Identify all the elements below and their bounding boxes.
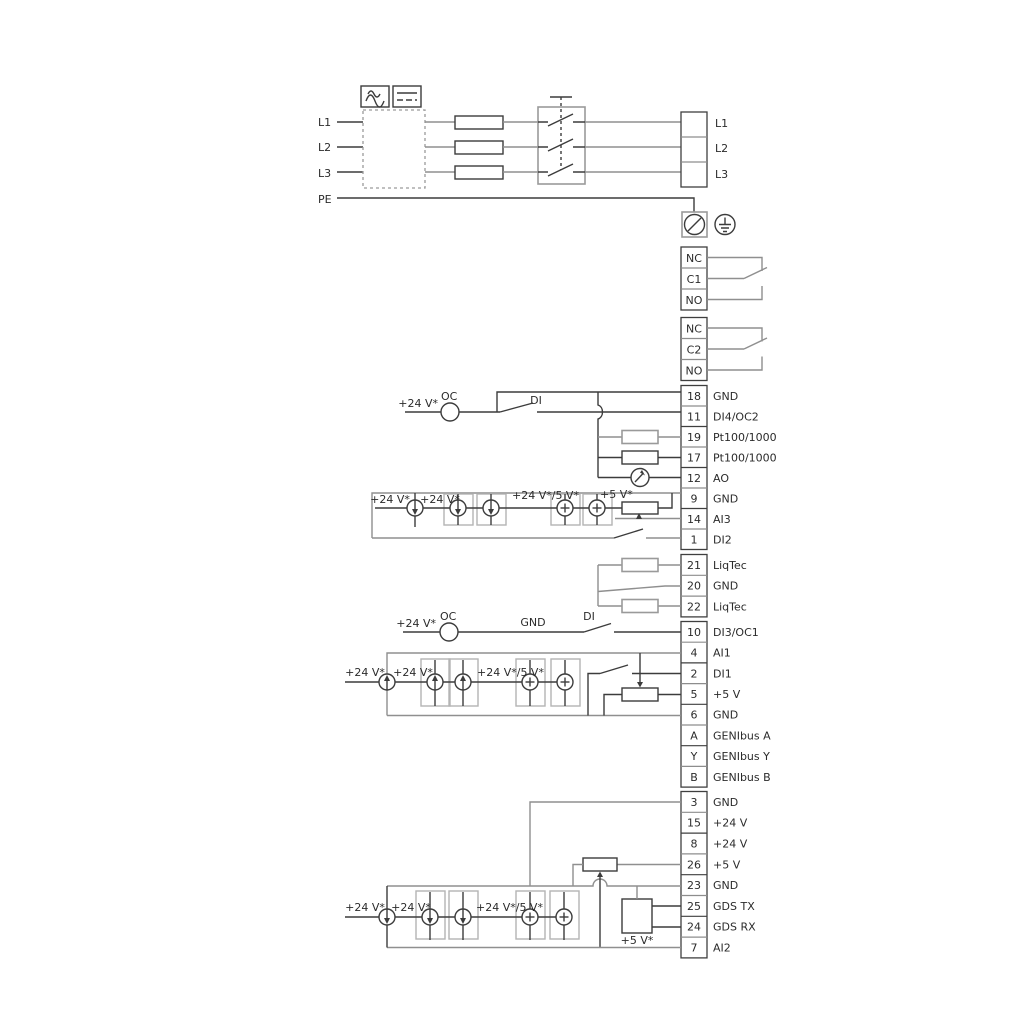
terminal-label: GND <box>713 580 738 593</box>
phase-out-label: L1 <box>715 117 728 130</box>
terminal-number: 1 <box>691 534 698 547</box>
terminal-number: 11 <box>687 411 701 424</box>
terminal-label: AO <box>713 472 729 485</box>
dc-symbol-icon <box>393 86 421 107</box>
plus24v-label: +24 V* <box>393 666 433 679</box>
terminal-number: 18 <box>687 390 701 403</box>
pt100-resistor-icon <box>622 431 658 444</box>
mains-terminal-block <box>681 112 707 187</box>
terminal-label: LiqTec <box>713 601 747 614</box>
terminal-label: GND <box>713 796 738 809</box>
terminal-number: 5 <box>691 688 698 701</box>
terminal-label: DI1 <box>713 667 732 680</box>
relay-terminal: NC <box>686 252 702 265</box>
phase-out-label: L3 <box>715 168 728 181</box>
liqtec-sensor-circuit <box>598 559 681 613</box>
di-switch-icon <box>500 403 533 412</box>
terminal-number: 12 <box>687 472 701 485</box>
terminal-label: Pt100/1000 <box>713 431 777 444</box>
di3-oc1-circuit: +24 V* OC GND DI <box>396 610 681 641</box>
main-switch <box>538 97 585 184</box>
plus5v-label: +5 V* <box>600 488 633 501</box>
liqtec-resistor-icon <box>622 559 658 572</box>
terminal-label: +24 V <box>713 838 748 851</box>
terminal-number: 25 <box>687 900 701 913</box>
plus24v-label: +24 V* <box>396 617 436 630</box>
di2-switch-icon <box>614 529 643 538</box>
plus24v-5v-label: +24 V*/5 V* <box>512 489 579 502</box>
phase-in-label: L1 <box>318 116 331 129</box>
di-label: DI <box>530 394 542 407</box>
terminal-number: 4 <box>691 647 698 660</box>
pe-label: PE <box>318 193 332 206</box>
terminal-label: GND <box>713 493 738 506</box>
fuse-icon <box>455 116 503 129</box>
plus24v-label: +24 V* <box>345 901 385 914</box>
terminal-number: A <box>690 729 698 742</box>
ai2-gds-circuit: +5 V* +24 V* +24 V* +24 V*/5 V* <box>345 802 681 948</box>
io2-terminal-block: 10 4 2 5 6 A Y B DI3/OC1 AI1 DI1 +5 V GN… <box>681 622 771 788</box>
open-collector-icon <box>440 623 458 641</box>
oc-label: OC <box>440 610 457 623</box>
terminal-label: GDS RX <box>713 921 756 934</box>
terminal-label: +5 V <box>713 858 741 871</box>
gnd-label: GND <box>520 616 545 629</box>
liqtec-terminal-block: 21 20 22 LiqTec GND LiqTec <box>598 555 747 617</box>
terminal-label: GENIbus A <box>713 729 771 742</box>
plus24v-label: +24 V* <box>345 666 385 679</box>
ai1-circuit: +24 V* +24 V* +24 V*/5 V* <box>345 653 681 716</box>
plus24v-label: +24 V* <box>391 901 431 914</box>
voltage-source-icon <box>557 500 573 516</box>
phase-out-label: L2 <box>715 142 728 155</box>
terminal-label: GDS TX <box>713 900 755 913</box>
terminal-number: Y <box>690 750 698 763</box>
relay2-block: NC C2 NO <box>681 318 767 381</box>
current-source-icon <box>455 909 471 925</box>
relay-terminal: NO <box>686 294 703 307</box>
terminal-label: DI3/OC1 <box>713 626 759 639</box>
rcd-box <box>363 110 425 188</box>
di1-switch-icon <box>600 665 628 674</box>
terminal-number: 3 <box>691 796 698 809</box>
terminal-label: DI4/OC2 <box>713 411 759 424</box>
terminal-number: 22 <box>687 601 701 614</box>
terminal-number: 7 <box>691 942 698 955</box>
terminal-label: +5 V <box>713 688 741 701</box>
terminal-number: 8 <box>691 838 698 851</box>
ai3-circuit: +24 V* +24 V* +24 V*/5 V* +5 V* <box>370 488 681 538</box>
terminal-number: 15 <box>687 817 701 830</box>
io1-terminal-block: 18 11 19 17 12 9 14 1 GND DI4/OC2 Pt100/… <box>681 386 777 550</box>
terminal-number: 26 <box>687 858 701 871</box>
terminal-number: 2 <box>691 667 698 680</box>
wiring-diagram: L1 L2 L3 PE <box>0 0 1024 1024</box>
di-label: DI <box>583 610 595 623</box>
terminal-label: DI2 <box>713 534 732 547</box>
relay-terminal: C2 <box>687 344 702 357</box>
liqtec-resistor-icon <box>622 600 658 613</box>
relay1-block: NC C1 NO <box>681 247 767 310</box>
voltage-source-icon <box>556 909 572 925</box>
screw-terminal-icon <box>682 212 707 237</box>
terminal-number: 14 <box>687 513 701 526</box>
terminal-label: GENIbus B <box>713 771 771 784</box>
terminal-number: 21 <box>687 559 701 572</box>
potentiometer-icon <box>604 653 681 716</box>
io3-terminal-block: 3 15 8 26 23 25 24 7 GND +24 V +24 V +5 … <box>681 792 756 958</box>
analog-meter-icon <box>631 469 649 487</box>
phase-in-label: L2 <box>318 141 331 154</box>
terminal-number: 17 <box>687 452 701 465</box>
terminal-number: 9 <box>691 493 698 506</box>
ac-symbol-icon <box>361 86 389 107</box>
plus24v-5v-label: +24 V*/5 V* <box>477 666 544 679</box>
terminal-label: GND <box>713 390 738 403</box>
earth-icon <box>715 215 735 235</box>
voltage-source-icon <box>557 674 573 690</box>
current-source-icon <box>483 500 499 516</box>
relay-terminal: C1 <box>687 273 702 286</box>
fuse-icon <box>455 166 503 179</box>
terminal-label: AI1 <box>713 647 731 660</box>
terminal-number: 10 <box>687 626 701 639</box>
di4-oc2-circuit: +24 V* OC DI <box>398 390 681 487</box>
voltage-source-icon <box>589 500 605 516</box>
relay-terminal: NO <box>686 365 703 378</box>
terminal-label: Pt100/1000 <box>713 452 777 465</box>
plus24v-label: +24 V* <box>370 493 410 506</box>
relay-terminal: NC <box>686 323 702 336</box>
relay-contact-icon <box>707 258 767 300</box>
fuse-icon <box>455 141 503 154</box>
oc-label: OC <box>441 390 458 403</box>
wiring-diagram-svg: L1 L2 L3 PE <box>0 0 1024 1024</box>
terminal-label: AI2 <box>713 942 731 955</box>
gds-sensor-box <box>622 886 681 933</box>
current-source-icon <box>455 674 471 690</box>
terminal-number: B <box>690 771 698 784</box>
terminal-number: 24 <box>687 921 701 934</box>
terminal-number: 19 <box>687 431 701 444</box>
relay-contact-icon <box>707 328 767 370</box>
terminal-number: 20 <box>687 580 701 593</box>
plus5v-label: +5 V* <box>621 934 654 947</box>
terminal-number: 23 <box>687 879 701 892</box>
pt100-resistor-icon <box>622 451 658 464</box>
terminal-label: GND <box>713 709 738 722</box>
phase-in-label: L3 <box>318 167 331 180</box>
terminal-number: 6 <box>691 709 698 722</box>
terminal-label: GND <box>713 879 738 892</box>
plus24v-label: +24 V* <box>398 397 438 410</box>
terminal-label: LiqTec <box>713 559 747 572</box>
plus24v-label: +24 V* <box>420 493 460 506</box>
plus24v-5v-label: +24 V*/5 V* <box>476 901 543 914</box>
open-collector-icon <box>441 403 459 421</box>
di-switch-icon <box>584 624 611 633</box>
mains-section: L1 L2 L3 PE <box>318 86 735 237</box>
terminal-label: +24 V <box>713 817 748 830</box>
terminal-label: AI3 <box>713 513 731 526</box>
terminal-label: GENIbus Y <box>713 750 770 763</box>
